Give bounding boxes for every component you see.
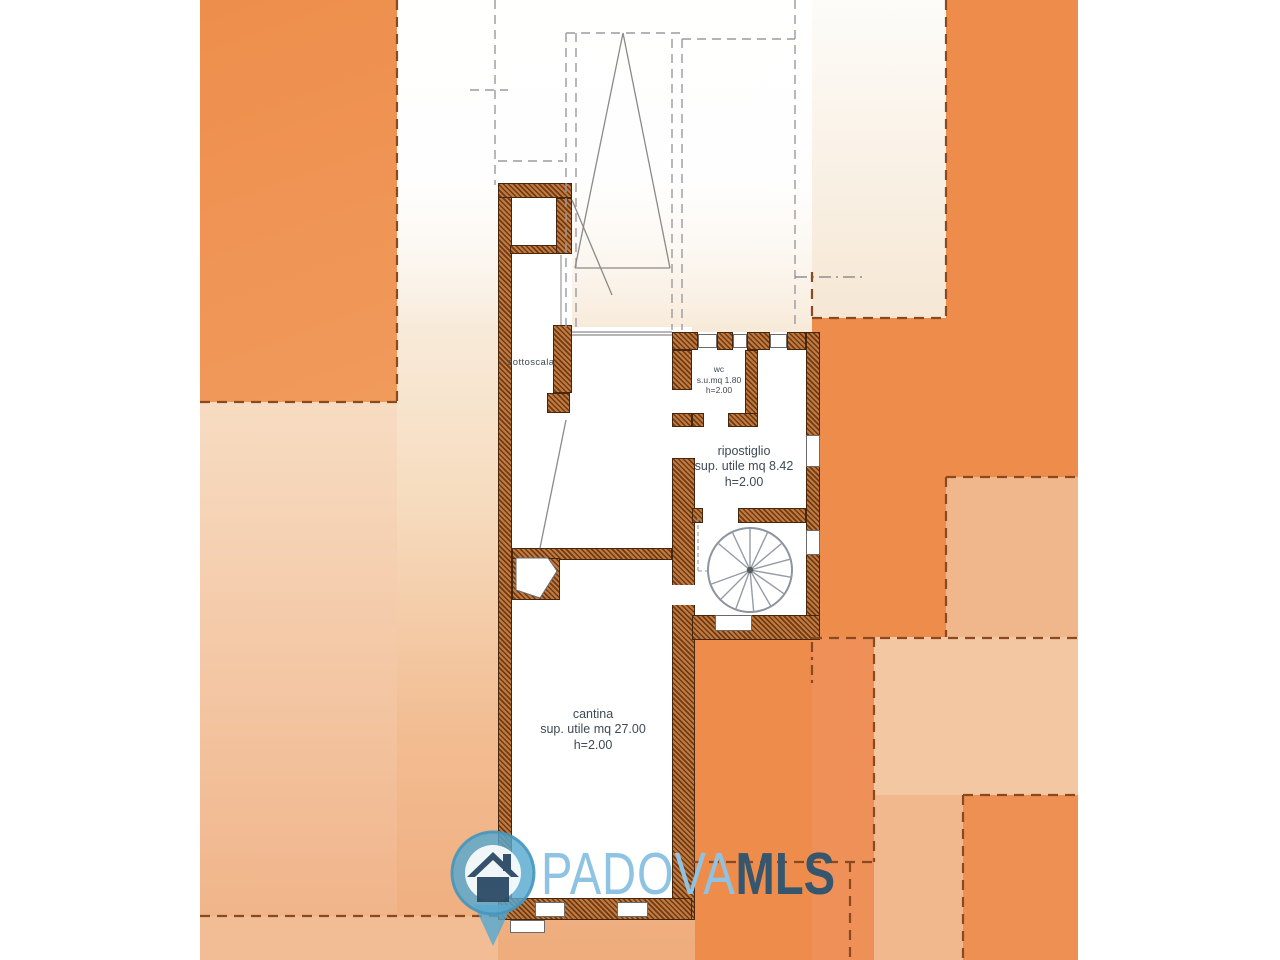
window-opening <box>698 334 717 348</box>
wall-segment <box>672 413 692 427</box>
wall-segment <box>498 185 512 920</box>
floorplan-page: sottoscala wc s.u.mq 1.80 h=2.00 riposti… <box>200 0 1078 960</box>
wall-segment <box>747 332 770 350</box>
door-opening <box>672 585 695 605</box>
wall-segment <box>556 198 572 254</box>
watermark-brand-primary: PADOVA <box>541 846 736 902</box>
floor-plan: sottoscala wc s.u.mq 1.80 h=2.00 riposti… <box>200 0 1078 960</box>
room-label-wc: wc s.u.mq 1.80 h=2.00 <box>689 364 749 396</box>
room-label-sottoscala: sottoscala <box>503 357 559 369</box>
watermark-logo: PADOVAMLS <box>541 846 835 902</box>
watermark-brand-secondary: MLS <box>736 846 836 902</box>
wall-segment <box>672 332 698 350</box>
scanned-floorplan-screenshot: sottoscala wc s.u.mq 1.80 h=2.00 riposti… <box>0 0 1280 960</box>
window-opening <box>770 334 787 348</box>
wall-step <box>510 920 545 933</box>
wall-segment <box>498 183 572 198</box>
wall-segment <box>728 413 758 427</box>
wall-segment <box>692 413 704 427</box>
wall-segment <box>512 558 560 600</box>
wall-segment <box>787 332 806 350</box>
stair-projection-triangle <box>572 33 670 295</box>
room-label-ripostiglio: ripostiglio sup. utile mq 8.42 h=2.00 <box>664 444 824 490</box>
window-opening <box>806 530 820 555</box>
wall-segment <box>547 393 570 413</box>
wall-segment <box>692 508 703 523</box>
wall-segment <box>738 508 806 523</box>
window-opening <box>715 615 752 631</box>
window-opening <box>733 334 747 348</box>
wall-segment <box>692 615 820 640</box>
room-label-cantina: cantina sup. utile mq 27.00 h=2.00 <box>513 707 673 753</box>
wall-segment <box>717 332 733 350</box>
